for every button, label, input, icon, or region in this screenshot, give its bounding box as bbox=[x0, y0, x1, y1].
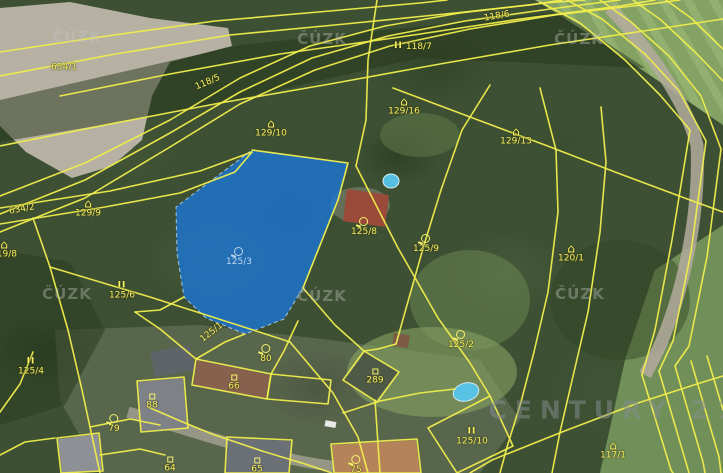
parcel-boundary-line bbox=[303, 288, 364, 351]
scenery-layer bbox=[0, 8, 697, 473]
parcel-boundary-line bbox=[100, 449, 165, 455]
parcel-boundary-line bbox=[196, 334, 245, 359]
red-roof-house bbox=[343, 189, 389, 227]
parcel-boundary-line bbox=[707, 356, 723, 410]
map-overlay-svg bbox=[0, 0, 723, 473]
building-outline bbox=[267, 374, 331, 404]
parcel-boundary-line bbox=[659, 371, 689, 473]
roof-building-88 bbox=[138, 378, 187, 431]
parcel-boundary-line bbox=[0, 438, 55, 455]
parcel-boundary-line bbox=[642, 375, 673, 473]
parcel-boundary-line bbox=[666, 0, 723, 49]
cadastral-map-viewport[interactable]: 634/1118/5II118/7118/6⌂129/10⌂129/16⌂129… bbox=[0, 0, 723, 473]
parked-car bbox=[325, 420, 337, 428]
highlighted-parcel[interactable] bbox=[176, 150, 348, 334]
round-pool bbox=[383, 174, 399, 188]
parcel-boundary-line bbox=[356, 0, 377, 166]
garden-shed bbox=[392, 333, 410, 348]
garden-patch bbox=[380, 113, 460, 157]
roof-building-65 bbox=[226, 438, 291, 473]
roof-building-75 bbox=[332, 440, 420, 473]
roof-building bbox=[150, 345, 195, 377]
